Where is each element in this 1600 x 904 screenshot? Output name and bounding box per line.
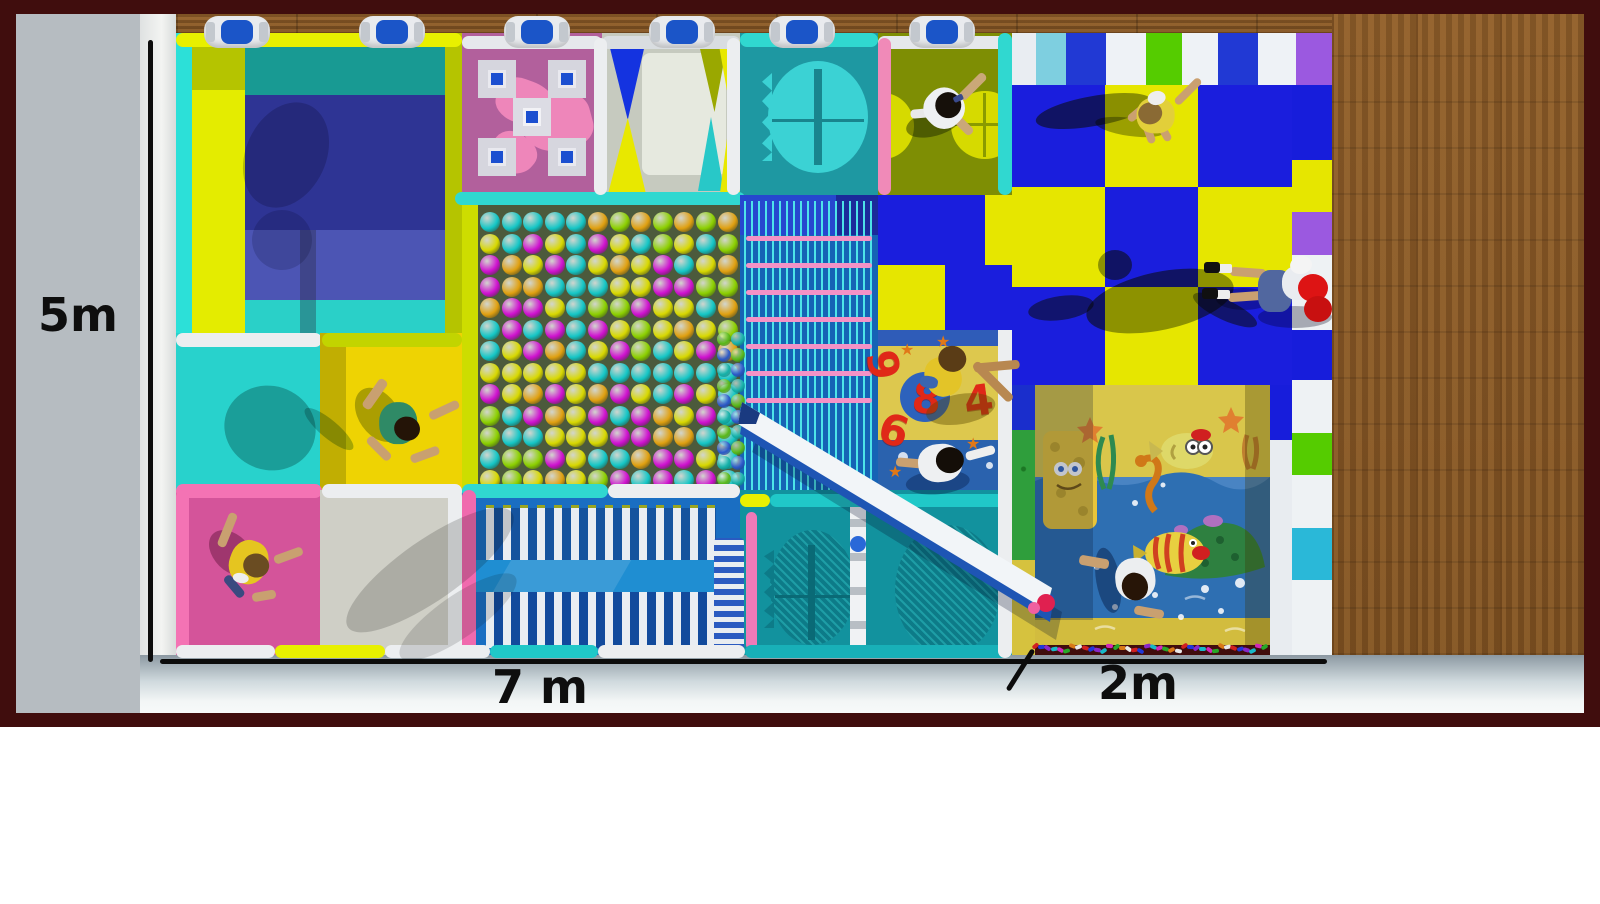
ball (731, 363, 745, 377)
tile (1292, 528, 1332, 580)
ball (631, 212, 651, 232)
checker-cell (1198, 85, 1292, 187)
zone-triangles (602, 33, 740, 195)
dimension-label-height: 5m (38, 292, 118, 338)
slats-top-row (486, 508, 716, 560)
zone-spinner (740, 33, 878, 195)
ball (480, 234, 500, 254)
dimension-label-extension: 2m (1098, 660, 1178, 706)
person-part (1218, 264, 1232, 273)
mural-shadow-right (1245, 385, 1270, 645)
ball (502, 449, 522, 469)
checker-inset-cell (985, 195, 1012, 265)
rail-yellowgreen-mid (322, 333, 462, 347)
ball (588, 234, 608, 254)
ball (545, 363, 565, 383)
ball (631, 427, 651, 447)
tile (1292, 330, 1332, 380)
ball (480, 341, 500, 361)
ball (674, 449, 694, 469)
ball (545, 406, 565, 426)
bubble (986, 462, 993, 469)
ball (566, 406, 586, 426)
left-wall (16, 14, 140, 713)
tile (1292, 433, 1332, 475)
ball (502, 255, 522, 275)
mural-shadow-left (1035, 385, 1093, 620)
ball (610, 298, 630, 318)
pyramid-pole (548, 60, 586, 98)
ball (588, 427, 608, 447)
ball (566, 341, 586, 361)
rail-white-mid (176, 333, 322, 347)
checker-cell (1012, 187, 1105, 287)
ball (631, 277, 651, 297)
stripe (1106, 33, 1146, 85)
person-part (1304, 296, 1332, 322)
ball (696, 363, 716, 383)
ball (588, 406, 608, 426)
rope-bar (746, 317, 872, 322)
ball (653, 298, 673, 318)
ball (731, 425, 745, 439)
ball (480, 298, 500, 318)
ball (674, 427, 694, 447)
ball (696, 212, 716, 232)
stripe (1146, 33, 1182, 85)
ball (674, 234, 694, 254)
ball (696, 277, 716, 297)
checker-remnant-white (1270, 440, 1292, 655)
ball (480, 406, 500, 426)
ball (480, 320, 500, 340)
ball (674, 406, 694, 426)
ball (717, 363, 731, 377)
edge-shadow (320, 333, 346, 490)
ball (731, 379, 745, 393)
ball (717, 456, 731, 470)
ball (523, 234, 543, 254)
left-wall-edge (140, 14, 176, 713)
roller-clamp (504, 16, 570, 48)
ball (631, 298, 651, 318)
ball (717, 410, 731, 424)
tile (1292, 580, 1332, 655)
zone-rope-curtain (740, 195, 878, 490)
shadow-blob (1098, 250, 1132, 280)
pink-pole (746, 512, 757, 650)
ball (653, 212, 673, 232)
checker-inset-cell (878, 265, 945, 330)
rail-bottom-white (176, 645, 275, 658)
stripe (1182, 33, 1218, 85)
ball (610, 449, 630, 469)
ball (718, 277, 738, 297)
ball (610, 320, 630, 340)
ball (588, 212, 608, 232)
sea-mural-art (1035, 385, 1270, 645)
ball (545, 298, 565, 318)
pyramid-pole-center (513, 98, 551, 136)
rail-bottom-cyan (490, 645, 598, 658)
oval-bar-h (775, 595, 855, 598)
ball (696, 449, 716, 469)
ball (480, 255, 500, 275)
white-pole (850, 495, 866, 655)
ball (718, 255, 738, 275)
ball (480, 363, 500, 383)
rail-pink-left (176, 490, 189, 655)
ball (566, 320, 586, 340)
oval-bar-v (808, 545, 815, 640)
rope-bar (746, 236, 872, 241)
roller-clamp (649, 16, 715, 48)
pyramid-pole (548, 138, 586, 176)
rope-bar (746, 263, 872, 268)
ball (480, 384, 500, 404)
pyramid-pole (478, 60, 516, 98)
stripe (1296, 33, 1332, 85)
ball (731, 394, 745, 408)
ball (653, 449, 673, 469)
sand-strip (1035, 618, 1270, 645)
rope-bar (746, 290, 872, 295)
ball (731, 348, 745, 362)
confetti-piece (1137, 648, 1145, 655)
stripe-band (1012, 33, 1332, 85)
ball (545, 212, 565, 232)
blue-triangle (608, 40, 646, 120)
tile (1292, 212, 1332, 255)
starfish (1218, 407, 1244, 433)
ball (480, 212, 500, 232)
ball (502, 298, 522, 318)
rope-bar (746, 398, 872, 403)
ball (566, 298, 586, 318)
ball (545, 255, 565, 275)
ball (588, 298, 608, 318)
stripe (1012, 33, 1036, 85)
step-ladder (714, 538, 744, 655)
ball (653, 255, 673, 275)
ball (545, 449, 565, 469)
ball (674, 341, 694, 361)
stripe (1218, 33, 1258, 85)
ball (545, 234, 565, 254)
tile (1292, 160, 1332, 212)
confetti-piece (1248, 648, 1256, 655)
ball (674, 320, 694, 340)
rail-pink-vertical (878, 38, 891, 195)
ball (717, 394, 731, 408)
ball (653, 234, 673, 254)
dimension-line-vertical (148, 40, 153, 662)
rail-pink-top (176, 484, 322, 498)
oval-mesh-right (895, 525, 1000, 655)
ball (566, 212, 586, 232)
mural-left-yellow-strip (1012, 560, 1035, 655)
spinner-teeth (762, 73, 772, 161)
spinner-bar-h (772, 119, 864, 122)
rail-vertical-white (594, 38, 607, 195)
pyramid-pole (478, 138, 516, 176)
ball (502, 427, 522, 447)
ball (674, 277, 694, 297)
oval-teeth (764, 550, 774, 628)
ball (653, 406, 673, 426)
ball (523, 449, 543, 469)
ball (717, 441, 731, 455)
ball (610, 212, 630, 232)
ball (718, 212, 738, 232)
stripe (1036, 33, 1066, 85)
ball (480, 449, 500, 469)
ball (523, 341, 543, 361)
roller-clamp (359, 16, 425, 48)
tile (1292, 380, 1332, 433)
spinner-bar-v (814, 69, 822, 165)
dimension-label-width: 7 m (492, 664, 588, 710)
ball (502, 341, 522, 361)
teal-band-top (245, 47, 445, 100)
ball (674, 384, 694, 404)
ball (631, 449, 651, 469)
roller-clamp (769, 16, 835, 48)
rail-vertical-white (727, 38, 740, 195)
mural-left-green-strip (1012, 430, 1035, 560)
ball (674, 255, 694, 275)
ball (653, 277, 673, 297)
checker-inset-cell (878, 195, 985, 265)
ball (696, 320, 716, 340)
wood-floor-right (1332, 14, 1584, 655)
checker-remnant-blue (1270, 385, 1292, 440)
ball (731, 441, 745, 455)
yellow-triangle (608, 118, 646, 194)
ball (523, 320, 543, 340)
ball (566, 234, 586, 254)
person-part (1204, 262, 1220, 273)
confetti-piece (1063, 648, 1071, 654)
rail-white-top (322, 484, 462, 498)
ball (610, 277, 630, 297)
ball (631, 234, 651, 254)
ball (588, 277, 608, 297)
ball (610, 234, 630, 254)
ball (588, 449, 608, 469)
rail-right-cyan (998, 33, 1012, 195)
ball (717, 425, 731, 439)
ball (696, 298, 716, 318)
ball (610, 406, 630, 426)
ball (523, 212, 543, 232)
right-tile-column (1292, 85, 1332, 655)
rope-bar (746, 371, 872, 376)
ball (502, 406, 522, 426)
ball (523, 255, 543, 275)
stripe (1066, 33, 1106, 85)
page: 8469★★★★ (0, 0, 1600, 904)
mural-left-blue-strip (1012, 385, 1035, 430)
ball (696, 234, 716, 254)
ball (523, 277, 543, 297)
teal-band-bottom (245, 300, 445, 335)
roller-clamp (909, 16, 975, 48)
ball (696, 255, 716, 275)
ball (545, 427, 565, 447)
rail-white-top (608, 484, 740, 498)
roller-clamp (204, 16, 270, 48)
ball (674, 212, 694, 232)
ball (588, 320, 608, 340)
ball (566, 449, 586, 469)
ball (480, 427, 500, 447)
yellow-pad (192, 90, 246, 335)
tile (1292, 475, 1332, 528)
stripe (1258, 33, 1296, 85)
cyan-side-rail (176, 33, 192, 335)
ball (731, 332, 745, 346)
starfish-mark: ★ (900, 342, 914, 358)
ball (502, 212, 522, 232)
ball (631, 255, 651, 275)
ball (717, 332, 731, 346)
rail-bottom-yellow (275, 645, 385, 658)
ball (545, 320, 565, 340)
ball (631, 406, 651, 426)
ball (696, 427, 716, 447)
zone-pink-poles (462, 33, 602, 195)
confetti-piece (1174, 648, 1182, 653)
ball (523, 406, 543, 426)
ball (718, 234, 738, 254)
ball (717, 379, 731, 393)
ball (502, 277, 522, 297)
person-part (1216, 290, 1230, 299)
ball (502, 320, 522, 340)
ball (566, 255, 586, 275)
ball (718, 298, 738, 318)
rail-yellow-corner (740, 494, 770, 507)
rail-cyan-top (462, 484, 608, 498)
ball (731, 410, 745, 424)
rail-cyan-top (770, 494, 1012, 507)
rope-bar (746, 344, 872, 349)
ball (523, 384, 543, 404)
person-part (1202, 288, 1218, 299)
zone-ball-pit (462, 195, 740, 490)
blue-knob (850, 536, 866, 552)
confetti-piece (1212, 649, 1219, 654)
ball (674, 363, 694, 383)
ball (696, 406, 716, 426)
ball (610, 255, 630, 275)
ball (523, 363, 543, 383)
ball (653, 427, 673, 447)
ball (502, 234, 522, 254)
ball (631, 384, 651, 404)
ball (523, 298, 543, 318)
ball (696, 341, 716, 361)
ball (523, 427, 543, 447)
ball (717, 348, 731, 362)
playground-floorplan-render: 8469★★★★ (0, 0, 1600, 727)
rail-bottom-white (598, 645, 745, 658)
rail-bottom-teal (745, 645, 1012, 658)
ball (545, 277, 565, 297)
ball (588, 255, 608, 275)
ball (502, 384, 522, 404)
zone-teal-ovals (740, 490, 1012, 655)
ball (480, 277, 500, 297)
ball (674, 298, 694, 318)
ball (610, 427, 630, 447)
ball (502, 363, 522, 383)
sea-mural (1035, 385, 1270, 645)
ball (545, 341, 565, 361)
ball (566, 277, 586, 297)
tile (1292, 85, 1332, 160)
ball (731, 456, 745, 470)
ball (653, 384, 673, 404)
slats-bottom-row (486, 592, 716, 648)
zone-large-trampoline (176, 33, 462, 335)
checker-inset-cell (945, 265, 1012, 330)
ball (696, 384, 716, 404)
ball (566, 427, 586, 447)
